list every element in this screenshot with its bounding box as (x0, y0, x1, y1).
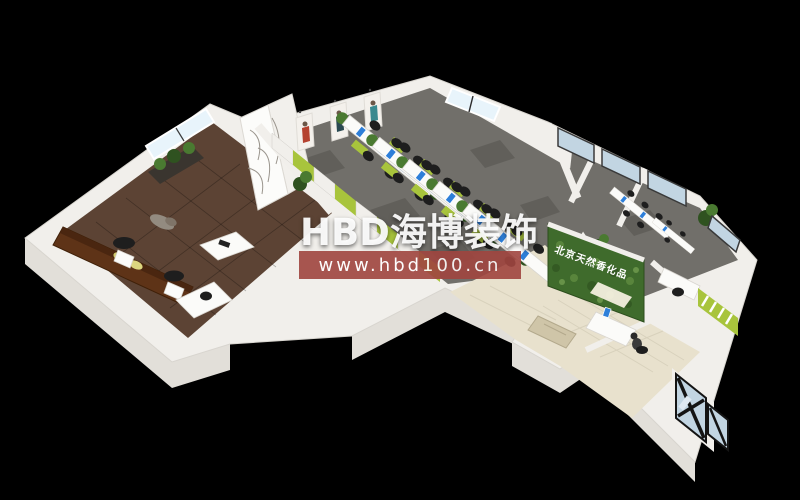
spotlight (334, 100, 336, 102)
office-chair (672, 288, 684, 297)
drum-lamp (164, 271, 184, 282)
poster-figure-head (371, 101, 376, 106)
desk-chair (200, 292, 212, 301)
render-canvas: 北京天然香化品 HBD海博装饰 www.hbd100.cn (0, 0, 800, 500)
watermark-brand: HBD海博装饰 (300, 214, 538, 251)
planter-plant (183, 142, 195, 154)
plant-foliage (300, 171, 312, 183)
planter-plant (167, 149, 181, 163)
poster-figure-head (303, 122, 308, 127)
watermark-url: www.hbd100.cn (319, 255, 502, 276)
spotlight (369, 89, 371, 91)
spotlight (299, 111, 301, 113)
poster-figure (302, 126, 310, 143)
poster-figure (370, 105, 378, 122)
drum-lamp (113, 237, 135, 249)
office-chair (636, 346, 648, 354)
planter-plant (154, 158, 166, 170)
watermark-banner: www.hbd100.cn (299, 251, 521, 279)
plant-foliage (706, 204, 718, 216)
